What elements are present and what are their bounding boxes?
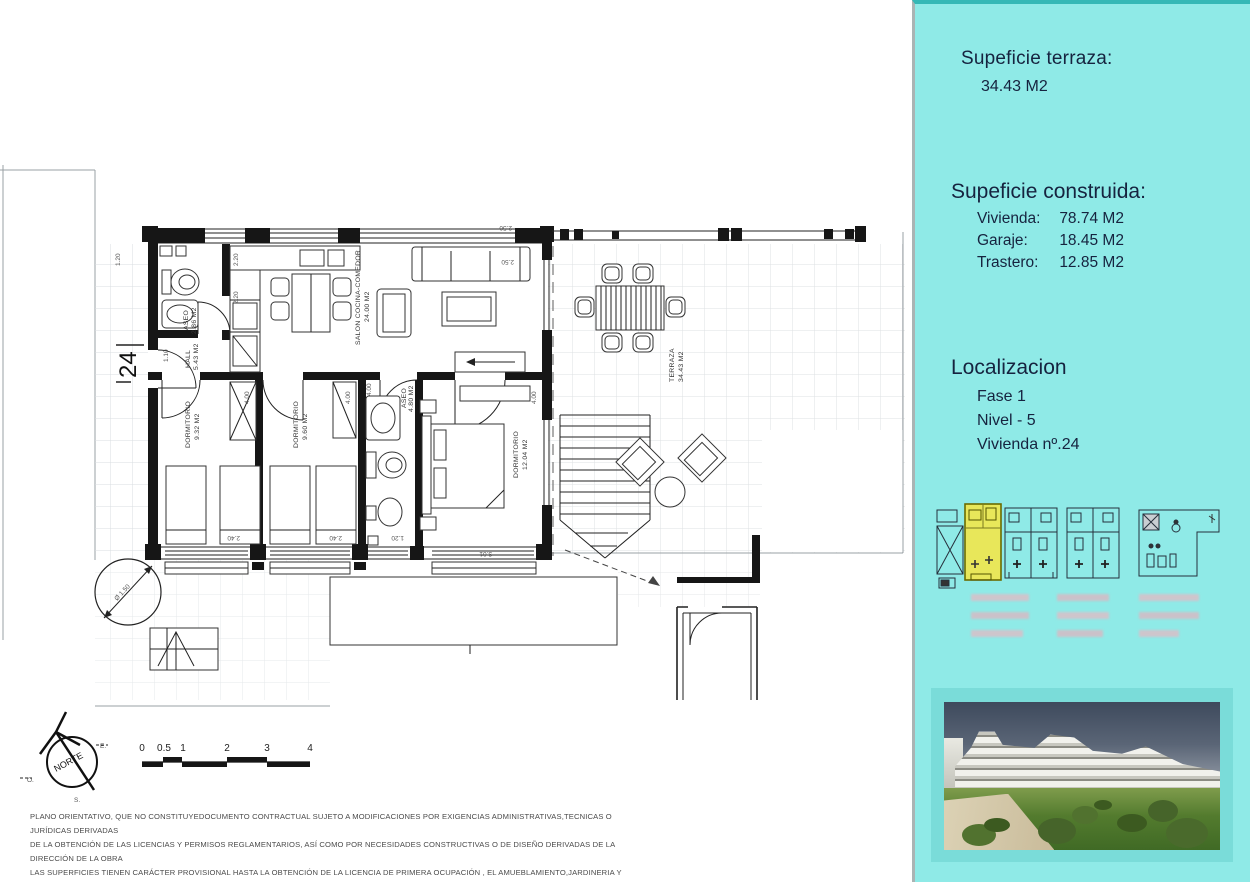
svg-text:1: 1: [180, 743, 186, 754]
svg-text:0.5: 0.5: [157, 743, 171, 754]
construida-item: Trastero: 12.85 M2: [977, 254, 1124, 276]
aseo1-area: 2.86 M2: [191, 307, 198, 334]
info-sidebar: Supeficie terraza: 34.43 M2 Supeficie co…: [912, 0, 1250, 882]
east-label: E.: [100, 743, 106, 750]
svg-text:2.50: 2.50: [501, 258, 514, 265]
construida-title: Supeficie construida:: [951, 180, 1146, 204]
svg-text:4.00: 4.00: [345, 391, 352, 404]
svg-text:4: 4: [307, 743, 313, 754]
building-render-photo: [931, 688, 1233, 862]
miniplan-garage-block: [1139, 510, 1219, 576]
svg-text:1.20: 1.20: [391, 534, 404, 541]
localizacion-item: Vivienda nº.24: [977, 436, 1080, 460]
svg-text:2: 2: [224, 743, 230, 754]
localizacion-item: Nivel - 5: [977, 412, 1080, 436]
terraza-label: TERRAZA: [669, 348, 676, 382]
dorm2-label: DORMITORIO: [293, 401, 300, 448]
locator-miniplan: [929, 486, 1233, 666]
unit-number: 24: [115, 351, 142, 378]
hall-area: 5.43 M2: [193, 343, 200, 370]
svg-text:2.50: 2.50: [499, 224, 512, 231]
plan-sheet: Ø 1.50 ASEO 2.86 M2 HALL 5.43 M2 SALON C…: [0, 0, 1250, 882]
bedroom1-furniture: [166, 382, 260, 544]
dorm2-area: 9.60 M2: [302, 413, 309, 440]
dorm1-label: DORMITORIO: [185, 401, 192, 448]
bedroom2-furniture: [270, 382, 356, 544]
aseo1-label: ASEO: [183, 310, 190, 330]
svg-text:2.20: 2.20: [233, 253, 240, 266]
localizacion-list: Fase 1 Nivel - 5 Vivienda nº.24: [977, 388, 1080, 460]
construida-item: Vivienda: 78.74 M2: [977, 210, 1124, 232]
terraza-area: 34.43 M2: [678, 351, 685, 382]
svg-text:1.20: 1.20: [115, 253, 122, 266]
dorm1-area: 9.32 M2: [194, 413, 201, 440]
photo-image: [944, 702, 1220, 850]
svg-text:3: 3: [264, 743, 270, 754]
south-label: S.: [74, 797, 80, 804]
svg-text:2.20: 2.20: [233, 291, 240, 304]
svg-text:2.40: 2.40: [329, 534, 342, 541]
aseo2-area: 4.80 M2: [408, 385, 415, 412]
miniplan-faded-rows: [971, 594, 1199, 637]
dorm3-area: 12.04 M2: [522, 439, 529, 470]
disclaimer-line: DE LA OBTENCIÓN DE LAS LICENCIAS Y PERMI…: [30, 838, 650, 866]
svg-text:4.00: 4.00: [531, 391, 538, 404]
hall-label: HALL: [185, 350, 192, 368]
disclaimer-text: PLANO ORIENTATIVO, QUE NO CONSTITUYEDOCU…: [30, 810, 650, 882]
floorplan-drawing: Ø 1.50 ASEO 2.86 M2 HALL 5.43 M2 SALON C…: [0, 0, 912, 882]
terraza-value: 34.43 M2: [981, 78, 1048, 96]
aseo2-fixtures: [366, 396, 406, 545]
salon-label: SALON COCINA-COMEDOR: [355, 250, 362, 345]
salon-area: 24.00 M2: [364, 291, 371, 322]
photo-bushes: [984, 818, 1010, 832]
svg-text:2.40: 2.40: [227, 534, 240, 541]
disclaimer-line: LAS SUPERFICIES TIENEN CARÁCTER PROVISIO…: [30, 866, 650, 882]
localizacion-title: Localizacion: [951, 356, 1067, 380]
aseo2-label: ASEO: [401, 388, 408, 408]
construida-item: Garaje: 18.45 M2: [977, 232, 1124, 254]
terraza-title: Supeficie terraza:: [961, 48, 1112, 70]
north-compass: NORTE E. O. S.: [20, 712, 108, 804]
svg-text:4.00: 4.00: [366, 383, 373, 396]
miniplan-unit-highlighted: [965, 504, 1001, 580]
svg-text:4.00: 4.00: [244, 391, 251, 404]
svg-text:3.01: 3.01: [479, 550, 492, 557]
svg-text:0: 0: [139, 743, 145, 754]
photo-bushes: [1094, 800, 1112, 810]
dining-set: [271, 274, 351, 332]
disclaimer-line: PLANO ORIENTATIVO, QUE NO CONSTITUYEDOCU…: [30, 810, 650, 838]
dorm3-label: DORMITORIO: [513, 431, 520, 478]
scale-bar: 0 0.5 1 2 3 4: [139, 743, 313, 767]
construida-list: Vivienda: 78.74 M2 Garaje: 18.45 M2 Tras…: [977, 210, 1124, 276]
svg-text:1.10: 1.10: [163, 349, 170, 362]
localizacion-item: Fase 1: [977, 388, 1080, 412]
